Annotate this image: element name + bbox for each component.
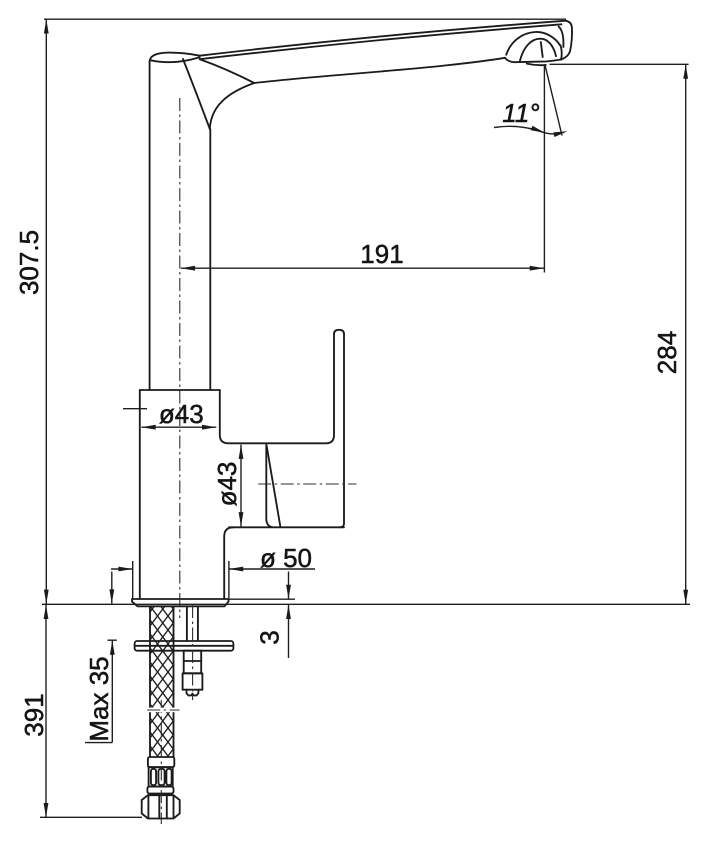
- svg-text:391: 391: [19, 693, 49, 736]
- svg-text:Max 35: Max 35: [84, 656, 114, 741]
- svg-text:ø 50: ø 50: [260, 543, 312, 573]
- svg-text:ø43: ø43: [159, 399, 204, 429]
- svg-text:3: 3: [255, 630, 285, 644]
- svg-text:11°: 11°: [502, 98, 539, 128]
- svg-text:307.5: 307.5: [14, 230, 44, 295]
- svg-text:ø43: ø43: [212, 462, 242, 507]
- svg-text:284: 284: [652, 331, 682, 374]
- svg-text:191: 191: [360, 239, 403, 269]
